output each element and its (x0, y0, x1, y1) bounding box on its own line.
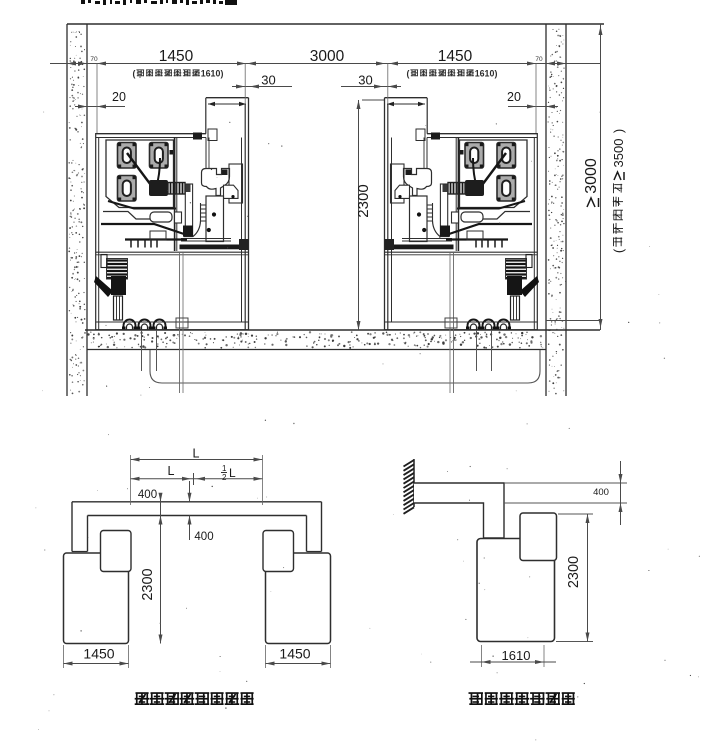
svg-text:70: 70 (535, 56, 543, 63)
svg-text:3500: 3500 (611, 139, 626, 168)
svg-text:2300: 2300 (355, 184, 372, 217)
svg-text:L: L (168, 464, 175, 478)
svg-text:1610: 1610 (502, 648, 531, 663)
svg-text:3000: 3000 (583, 158, 600, 194)
svg-text:L: L (193, 447, 200, 461)
svg-text:(: ( (611, 248, 626, 253)
svg-text:400: 400 (138, 489, 157, 501)
svg-text:): ) (221, 69, 224, 79)
svg-text:L: L (229, 466, 236, 480)
svg-text:): ) (611, 129, 626, 133)
svg-text:30: 30 (261, 73, 275, 88)
svg-text:2300: 2300 (140, 568, 156, 600)
svg-text:1450: 1450 (438, 48, 473, 65)
svg-text:400: 400 (593, 487, 609, 498)
svg-text:70: 70 (90, 56, 98, 63)
svg-text:400: 400 (194, 531, 213, 543)
svg-text:1450: 1450 (159, 48, 194, 65)
svg-text:(: ( (407, 69, 410, 79)
svg-text:2: 2 (222, 473, 227, 482)
svg-text:30: 30 (358, 73, 372, 88)
svg-text:1450: 1450 (279, 646, 310, 662)
svg-text:): ) (495, 69, 498, 79)
svg-text:3000: 3000 (310, 48, 345, 65)
svg-text:2300: 2300 (566, 556, 582, 588)
svg-text:20: 20 (112, 90, 126, 104)
svg-text:(: ( (133, 69, 136, 79)
svg-text:20: 20 (507, 90, 521, 104)
svg-text:1: 1 (222, 464, 227, 473)
svg-text:1450: 1450 (83, 646, 114, 662)
